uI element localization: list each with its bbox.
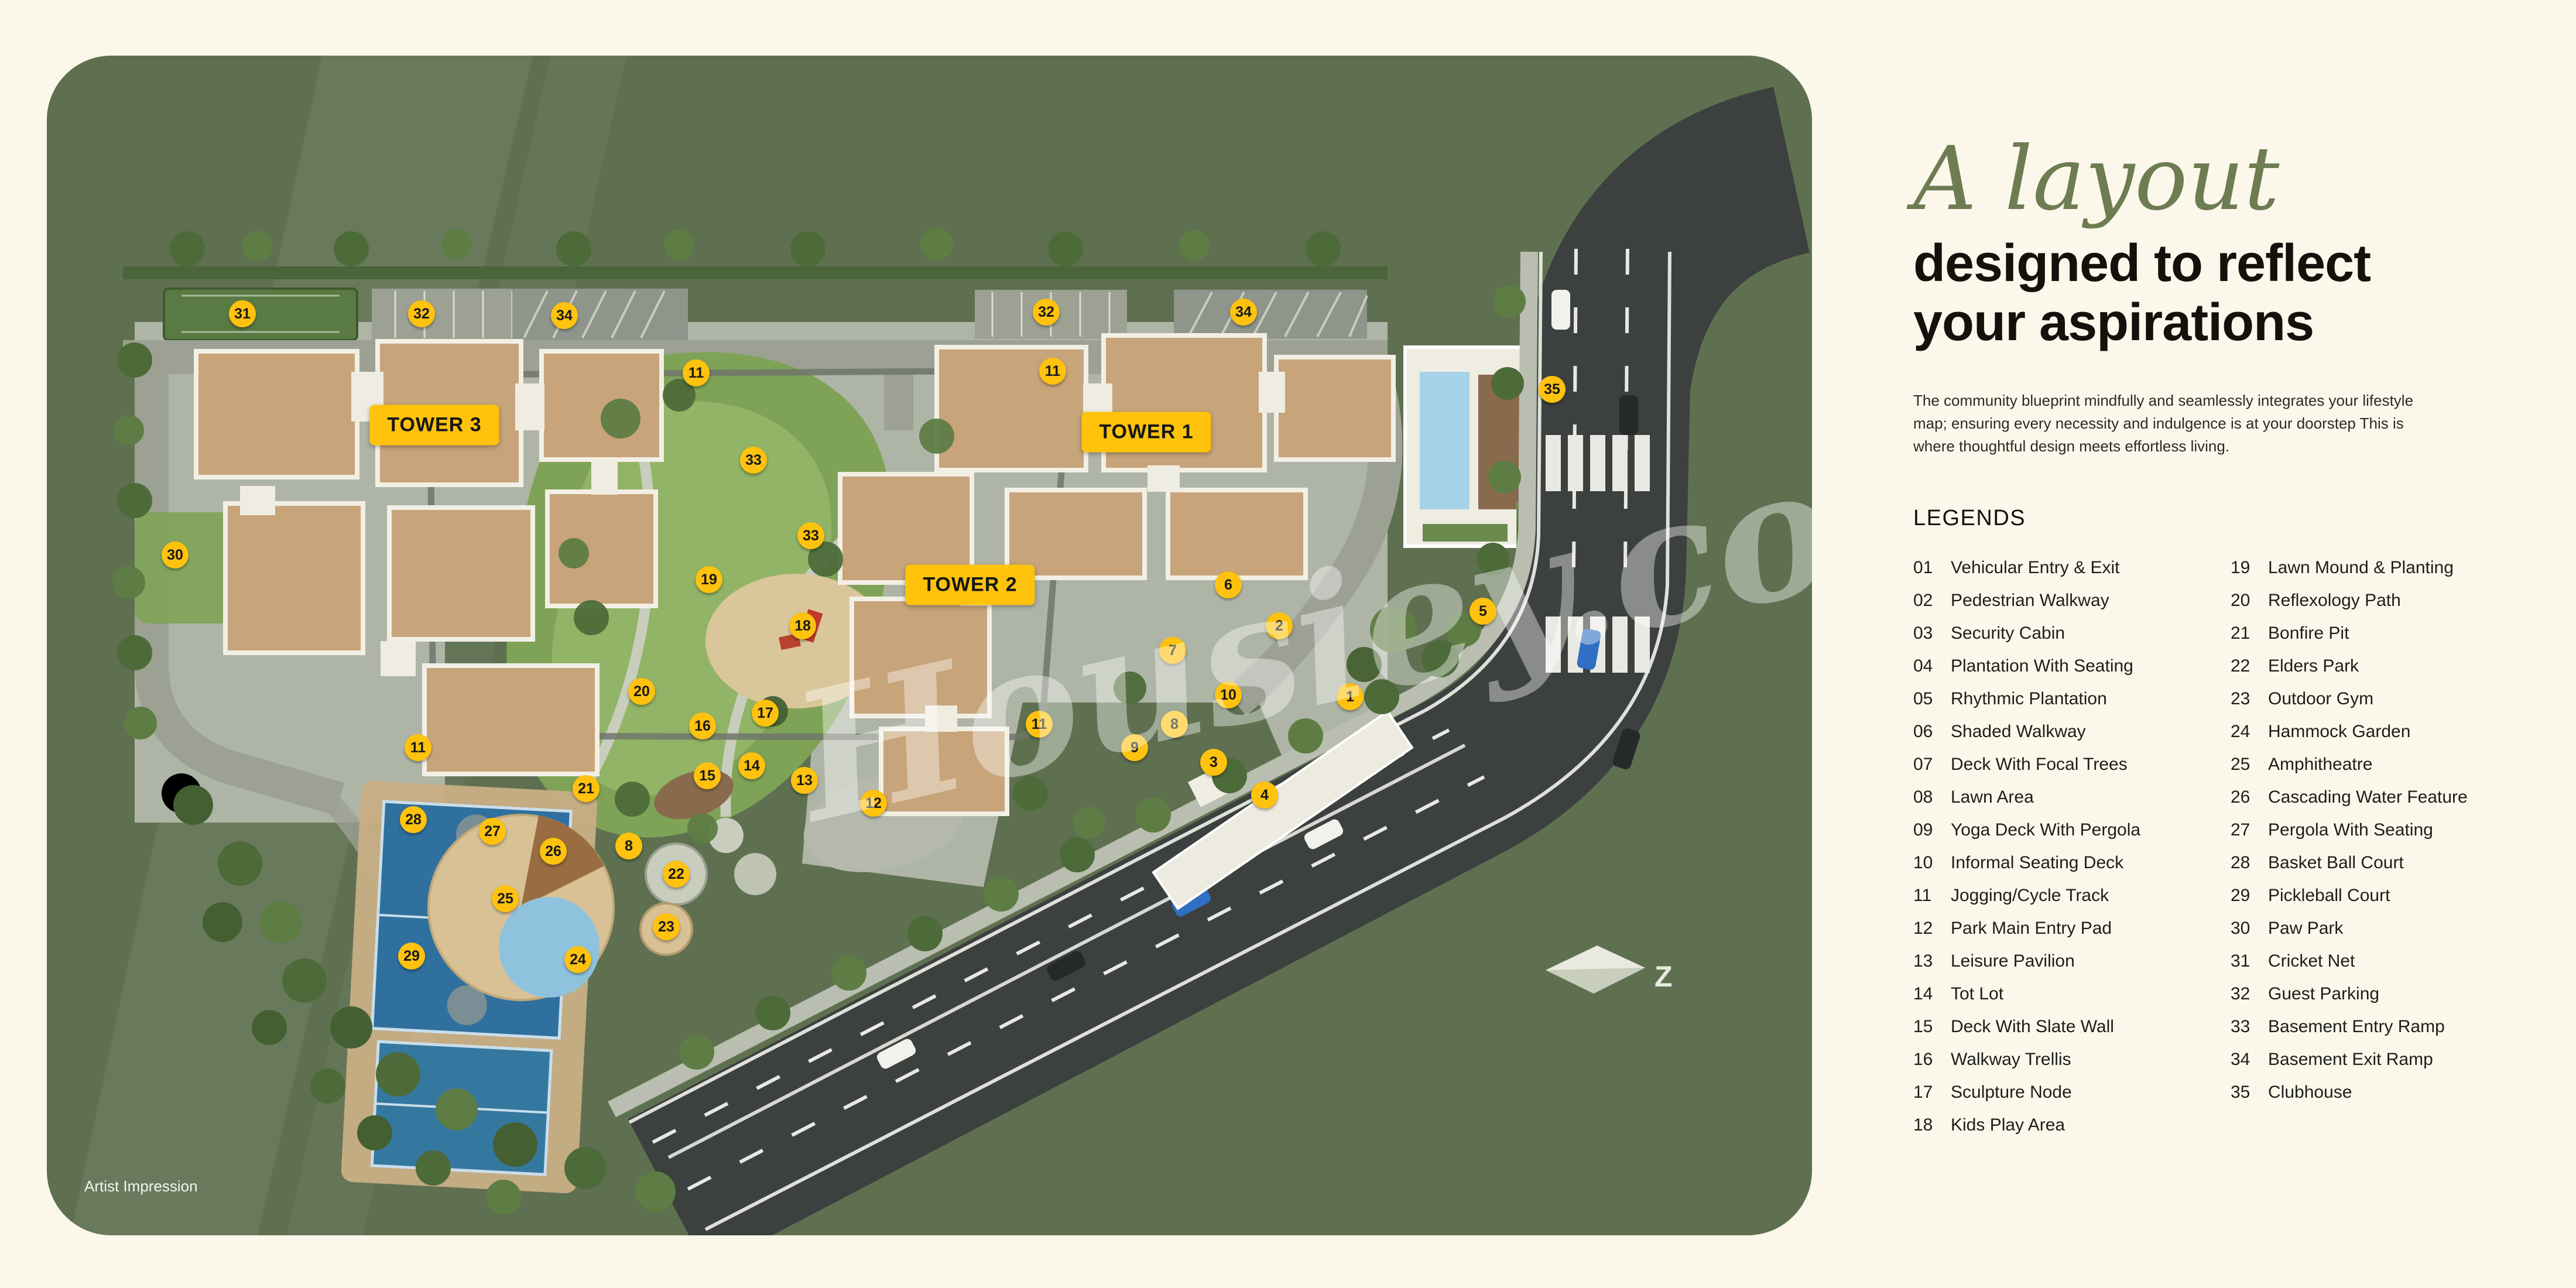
legend-item-label: Hammock Garden <box>2268 722 2410 742</box>
legend-item-label: Jogging/Cycle Track <box>1951 886 2109 906</box>
legend-item: 10Informal Seating Deck <box>1913 853 2231 886</box>
legend-item: 33Basement Entry Ramp <box>2231 1017 2468 1050</box>
legend-item-label: Guest Parking <box>2268 984 2379 1004</box>
legend-item: 27Pergola With Seating <box>2231 820 2468 853</box>
legend-item-label: Walkway Trellis <box>1951 1050 2071 1070</box>
legend-item-label: Reflexology Path <box>2268 591 2401 611</box>
legend-item-number: 09 <box>1913 820 1951 840</box>
legend-item: 22Elders Park <box>2231 656 2468 689</box>
legend-item: 34Basement Exit Ramp <box>2231 1050 2468 1083</box>
legend-item: 16Walkway Trellis <box>1913 1050 2231 1083</box>
map-marker-16: 16 <box>689 712 716 739</box>
legend-item: 20Reflexology Path <box>2231 591 2468 624</box>
tower-label-2: TOWER 1 <box>1081 412 1211 453</box>
map-marker-24: 24 <box>564 946 591 973</box>
legend-item-number: 20 <box>2231 591 2268 611</box>
legend-item-number: 24 <box>2231 722 2268 742</box>
legend-item: 19Lawn Mound & Planting <box>2231 558 2468 591</box>
legend-item: 17Sculpture Node <box>1913 1083 2231 1115</box>
tower-label-3: TOWER 2 <box>905 565 1034 605</box>
legend-item: 26Cascading Water Feature <box>2231 787 2468 820</box>
map-marker-6: 6 <box>1215 571 1242 598</box>
legend-item-label: Lawn Mound & Planting <box>2268 558 2454 578</box>
legend-item-number: 30 <box>2231 919 2268 938</box>
legend-item-label: Basement Entry Ramp <box>2268 1017 2445 1037</box>
map-marker-7: 7 <box>1159 637 1186 664</box>
legend-item: 32Guest Parking <box>2231 984 2468 1017</box>
legend-item-number: 14 <box>1913 984 1951 1004</box>
map-marker-19: 19 <box>696 566 722 593</box>
legend-item-label: Rhythmic Plantation <box>1951 689 2107 709</box>
legend-item-number: 17 <box>1913 1083 1951 1102</box>
map-marker-23: 23 <box>653 913 680 940</box>
legend-item: 21Bonfire Pit <box>2231 624 2468 656</box>
legend-item: 25Amphitheatre <box>2231 755 2468 787</box>
legend-item-label: Amphitheatre <box>2268 755 2372 775</box>
legend-item-number: 11 <box>1913 886 1951 906</box>
legend-item-label: Park Main Entry Pad <box>1951 919 2112 938</box>
legend-item-label: Cricket Net <box>2268 951 2355 971</box>
legend-item-label: Deck With Slate Wall <box>1951 1017 2114 1037</box>
legend-item-number: 32 <box>2231 984 2268 1004</box>
map-marker-5: 5 <box>1469 598 1496 625</box>
map-marker-20: 20 <box>628 678 655 705</box>
site-plan-panel: Z 31323432341111333330193562518720101617… <box>47 56 1812 1235</box>
tower-label-1: TOWER 3 <box>369 405 499 446</box>
legend-item-number: 28 <box>2231 853 2268 873</box>
legend-item: 05Rhythmic Plantation <box>1913 689 2231 722</box>
legend-item-number: 21 <box>2231 624 2268 643</box>
map-marker-32: 32 <box>1033 299 1060 326</box>
legend-item-number: 03 <box>1913 624 1951 643</box>
map-marker-26: 26 <box>540 838 567 865</box>
map-marker-21: 21 <box>573 775 600 802</box>
map-marker-27: 27 <box>479 818 506 845</box>
legends-title: LEGENDS <box>1913 506 2546 531</box>
map-marker-17: 17 <box>752 700 779 727</box>
map-marker-11: 11 <box>683 359 710 386</box>
legend-item: 18Kids Play Area <box>1913 1115 2231 1148</box>
legend-item-number: 10 <box>1913 853 1951 873</box>
legend-item: 08Lawn Area <box>1913 787 2231 820</box>
legend-item-label: Yoga Deck With Pergola <box>1951 820 2140 840</box>
map-marker-10: 10 <box>1215 681 1242 708</box>
legend-item-number: 04 <box>1913 656 1951 676</box>
map-marker-1: 1 <box>1337 683 1364 710</box>
heading-line-1: designed to reflect <box>1913 234 2546 294</box>
map-marker-22: 22 <box>663 861 690 888</box>
legend-item-number: 35 <box>2231 1083 2268 1102</box>
legend-item-label: Lawn Area <box>1951 787 2034 807</box>
legend-item: 04Plantation With Seating <box>1913 656 2231 689</box>
legend-item-number: 22 <box>2231 656 2268 676</box>
legend-item-number: 08 <box>1913 787 1951 807</box>
legend-item-number: 34 <box>2231 1050 2268 1070</box>
heading-main: designed to reflect your aspirations <box>1913 234 2546 353</box>
compass-icon: Z <box>1546 946 1673 994</box>
legend-item: 31Cricket Net <box>2231 951 2468 984</box>
legend-item-number: 31 <box>2231 951 2268 971</box>
legend-item-number: 13 <box>1913 951 1951 971</box>
legend-item-label: Basement Exit Ramp <box>2268 1050 2433 1070</box>
legend-item: 13Leisure Pavilion <box>1913 951 2231 984</box>
brochure-page: Z 31323432341111333330193562518720101617… <box>0 0 2576 1288</box>
map-marker-34: 34 <box>1230 299 1257 326</box>
legend-item: 24Hammock Garden <box>2231 722 2468 755</box>
legend-item-number: 27 <box>2231 820 2268 840</box>
legend-item: 35Clubhouse <box>2231 1083 2468 1115</box>
map-marker-4: 4 <box>1251 782 1278 809</box>
legend-item-number: 29 <box>2231 886 2268 906</box>
legend-item: 06Shaded Walkway <box>1913 722 2231 755</box>
legend-item: 23Outdoor Gym <box>2231 689 2468 722</box>
legend-item-number: 01 <box>1913 558 1951 578</box>
legend-item-number: 07 <box>1913 755 1951 775</box>
map-marker-25: 25 <box>492 885 519 912</box>
legend-item-label: Pedestrian Walkway <box>1951 591 2109 611</box>
map-marker-8: 8 <box>1161 711 1188 738</box>
legend-item-label: Deck With Focal Trees <box>1951 755 2128 775</box>
compass-label: Z <box>1654 960 1673 993</box>
legend-item-label: Bonfire Pit <box>2268 624 2349 643</box>
legend-item-label: Cascading Water Feature <box>2268 787 2468 807</box>
legend-item: 03Security Cabin <box>1913 624 2231 656</box>
legend-column-2: 19Lawn Mound & Planting20Reflexology Pat… <box>2231 558 2468 1148</box>
map-marker-9: 9 <box>1121 734 1148 761</box>
info-panel: A layout designed to reflect your aspira… <box>1913 133 2546 1148</box>
legend-columns: 01Vehicular Entry & Exit02Pedestrian Wal… <box>1913 558 2546 1148</box>
map-marker-8: 8 <box>615 833 642 859</box>
map-marker-13: 13 <box>791 767 818 794</box>
map-marker-33: 33 <box>797 522 824 549</box>
legend-item: 15Deck With Slate Wall <box>1913 1017 2231 1050</box>
legend-item-label: Clubhouse <box>2268 1083 2352 1102</box>
legend-item-label: Vehicular Entry & Exit <box>1951 558 2119 578</box>
map-marker-32: 32 <box>408 300 435 327</box>
legend-item: 14Tot Lot <box>1913 984 2231 1017</box>
legend-item: 12Park Main Entry Pad <box>1913 919 2231 951</box>
legend-item-number: 06 <box>1913 722 1951 742</box>
legend-item-label: Elders Park <box>2268 656 2359 676</box>
legend-item-label: Kids Play Area <box>1951 1115 2065 1135</box>
map-marker-11: 11 <box>1039 358 1066 385</box>
map-marker-29: 29 <box>398 943 425 970</box>
legend-item: 29Pickleball Court <box>2231 886 2468 919</box>
legend-item-label: Plantation With Seating <box>1951 656 2133 676</box>
legend-item-number: 25 <box>2231 755 2268 775</box>
legend-item-number: 05 <box>1913 689 1951 709</box>
heading-script: A layout <box>1913 133 2546 226</box>
legend-item-label: Paw Park <box>2268 919 2343 938</box>
legend-item-label: Sculpture Node <box>1951 1083 2072 1102</box>
legend-item-number: 18 <box>1913 1115 1951 1135</box>
legend-item-number: 26 <box>2231 787 2268 807</box>
map-marker-12: 12 <box>860 790 887 817</box>
legend-item-label: Basket Ball Court <box>2268 853 2404 873</box>
map-marker-11: 11 <box>1026 711 1053 738</box>
map-marker-11: 11 <box>405 734 431 761</box>
legend-item-number: 16 <box>1913 1050 1951 1070</box>
map-marker-14: 14 <box>738 752 765 779</box>
legend-item-number: 33 <box>2231 1017 2268 1037</box>
map-marker-2: 2 <box>1266 612 1293 639</box>
map-marker-15: 15 <box>694 762 721 789</box>
legend-item-label: Security Cabin <box>1951 624 2065 643</box>
map-marker-31: 31 <box>229 300 256 327</box>
legend-item-label: Leisure Pavilion <box>1951 951 2075 971</box>
legend-item: 09Yoga Deck With Pergola <box>1913 820 2231 853</box>
map-marker-34: 34 <box>551 302 578 329</box>
legend-item-number: 15 <box>1913 1017 1951 1037</box>
legend-item-label: Informal Seating Deck <box>1951 853 2123 873</box>
legend-item: 28Basket Ball Court <box>2231 853 2468 886</box>
legend-item-label: Shaded Walkway <box>1951 722 2086 742</box>
legend-item-label: Pergola With Seating <box>2268 820 2433 840</box>
legend-item: 30Paw Park <box>2231 919 2468 951</box>
legend-item: 07Deck With Focal Trees <box>1913 755 2231 787</box>
legend-item: 11Jogging/Cycle Track <box>1913 886 2231 919</box>
legend-item: 02Pedestrian Walkway <box>1913 591 2231 624</box>
map-marker-18: 18 <box>789 612 816 639</box>
map-marker-3: 3 <box>1200 749 1227 776</box>
legend-item-number: 23 <box>2231 689 2268 709</box>
legend-item-label: Tot Lot <box>1951 984 2003 1004</box>
map-marker-35: 35 <box>1539 376 1566 403</box>
heading-line-2: your aspirations <box>1913 293 2546 353</box>
legend-item-number: 19 <box>2231 558 2268 578</box>
artist-impression-note: Artist Impression <box>84 1177 198 1195</box>
site-plan-illustration: Z <box>47 56 1812 1235</box>
legend-item-label: Outdoor Gym <box>2268 689 2373 709</box>
legend-column-1: 01Vehicular Entry & Exit02Pedestrian Wal… <box>1913 558 2231 1148</box>
legend-item: 01Vehicular Entry & Exit <box>1913 558 2231 591</box>
legend-item-label: Pickleball Court <box>2268 886 2390 906</box>
map-marker-33: 33 <box>740 447 767 474</box>
intro-paragraph: The community blueprint mindfully and se… <box>1913 389 2440 458</box>
legend-item-number: 02 <box>1913 591 1951 611</box>
map-marker-30: 30 <box>162 542 189 568</box>
legend-item-number: 12 <box>1913 919 1951 938</box>
map-marker-28: 28 <box>400 806 427 833</box>
